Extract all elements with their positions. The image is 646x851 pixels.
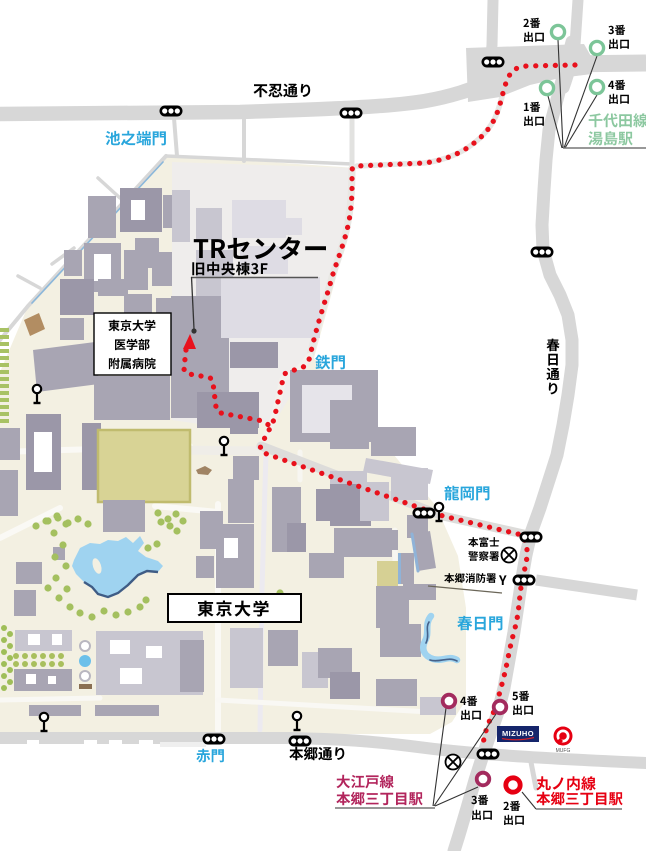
svg-text:MIZUHO: MIZUHO	[502, 729, 534, 738]
svg-text:MUFG: MUFG	[556, 748, 571, 754]
